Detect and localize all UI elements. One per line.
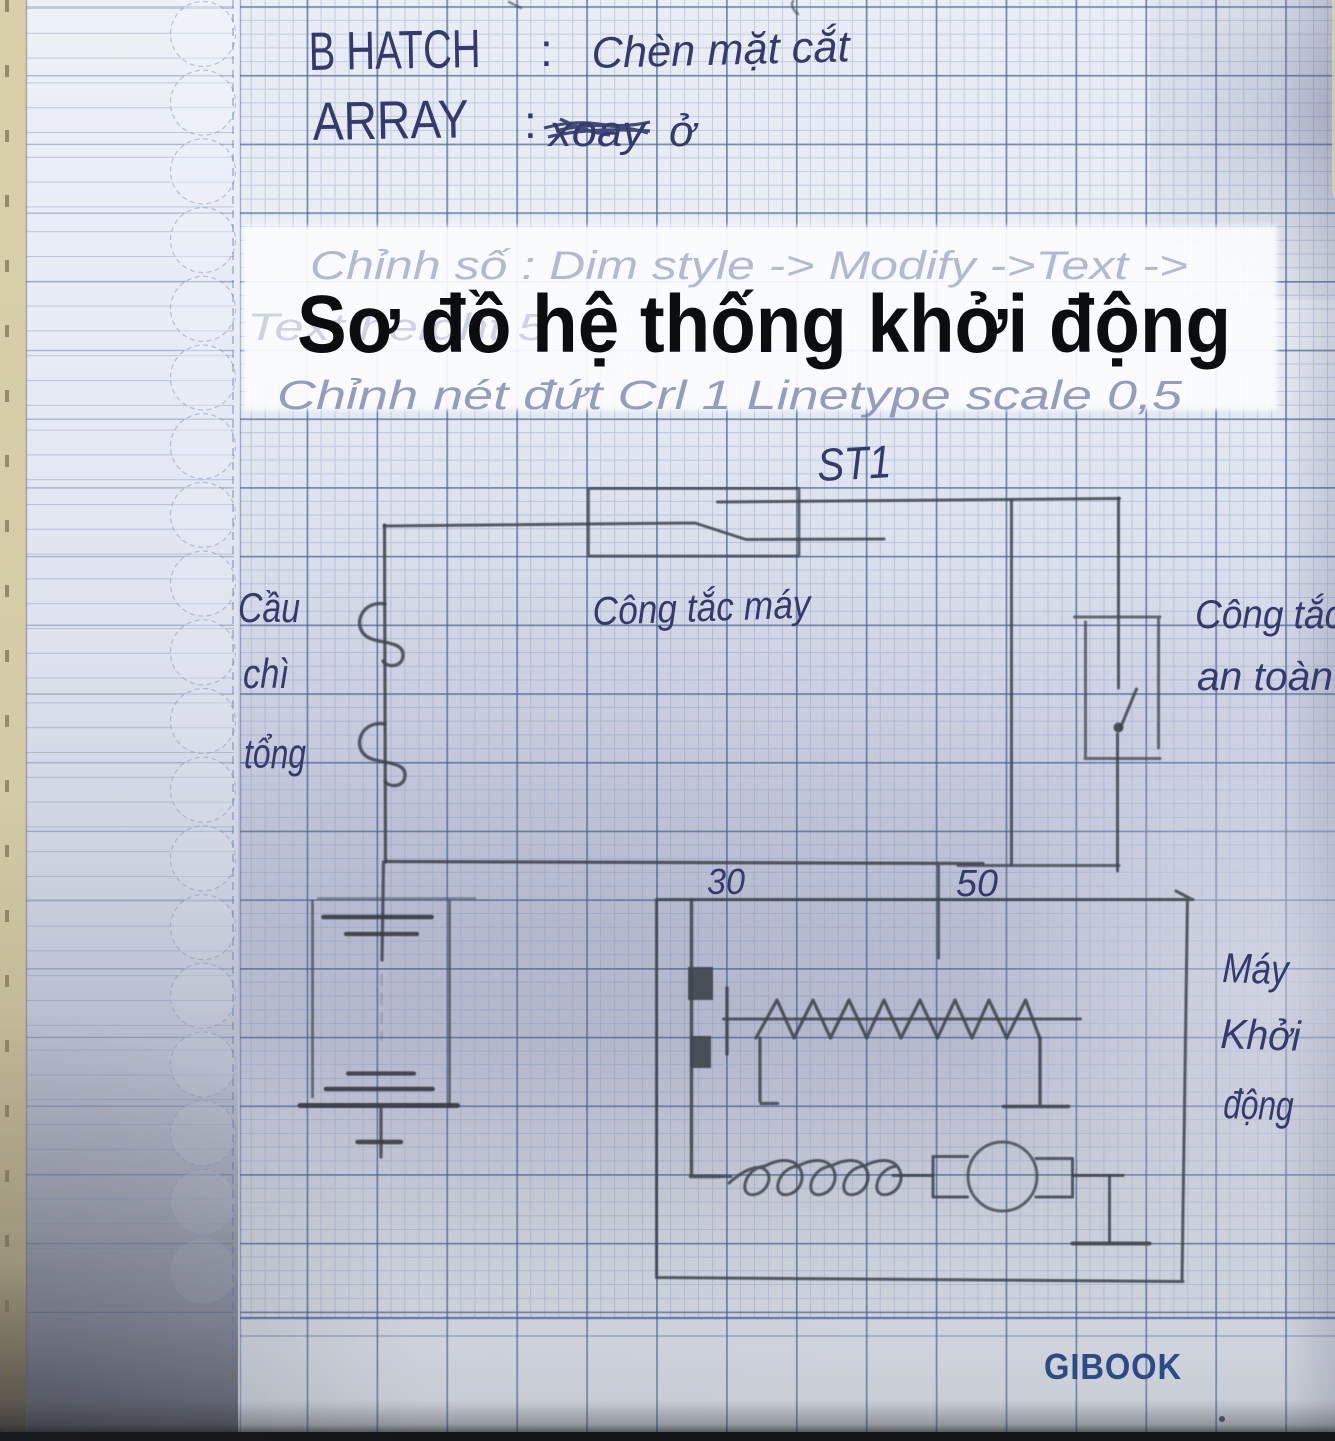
svg-text:an toàn: an toàn [1197, 655, 1333, 699]
svg-text:Chèn mặt cắt: Chèn mặt cắt [591, 22, 852, 78]
svg-text:ST1: ST1 [816, 435, 893, 491]
svg-text:Cầu: Cầu [238, 584, 300, 631]
svg-text:tổng: tổng [244, 730, 306, 777]
svg-text::: : [524, 96, 537, 148]
svg-text:Công tắc máy: Công tắc máy [592, 581, 814, 634]
svg-text:ARRAY: ARRAY [312, 89, 469, 152]
svg-text:Sơ đồ hệ thống khởi động: Sơ đồ hệ thống khởi động [297, 279, 1231, 370]
svg-text:Công tắc: Công tắc [1195, 592, 1335, 637]
svg-text:30: 30 [707, 861, 745, 902]
svg-text:Máy: Máy [1222, 944, 1292, 993]
svg-text:B HATCH: B HATCH [308, 19, 481, 82]
svg-text::: : [540, 24, 553, 76]
svg-text:GIBOOK: GIBOOK [1044, 1346, 1182, 1387]
svg-text:ở: ở [669, 107, 699, 156]
svg-text:Chỉnh nét đứt Crl 1 Li: Chỉnh nét đứt Crl 1 Linetype scale 0,5 [277, 372, 1182, 418]
svg-text:Khởi: Khởi [1220, 1010, 1303, 1060]
svg-text:chì: chì [243, 650, 289, 697]
svg-text:động: động [1223, 1080, 1295, 1129]
